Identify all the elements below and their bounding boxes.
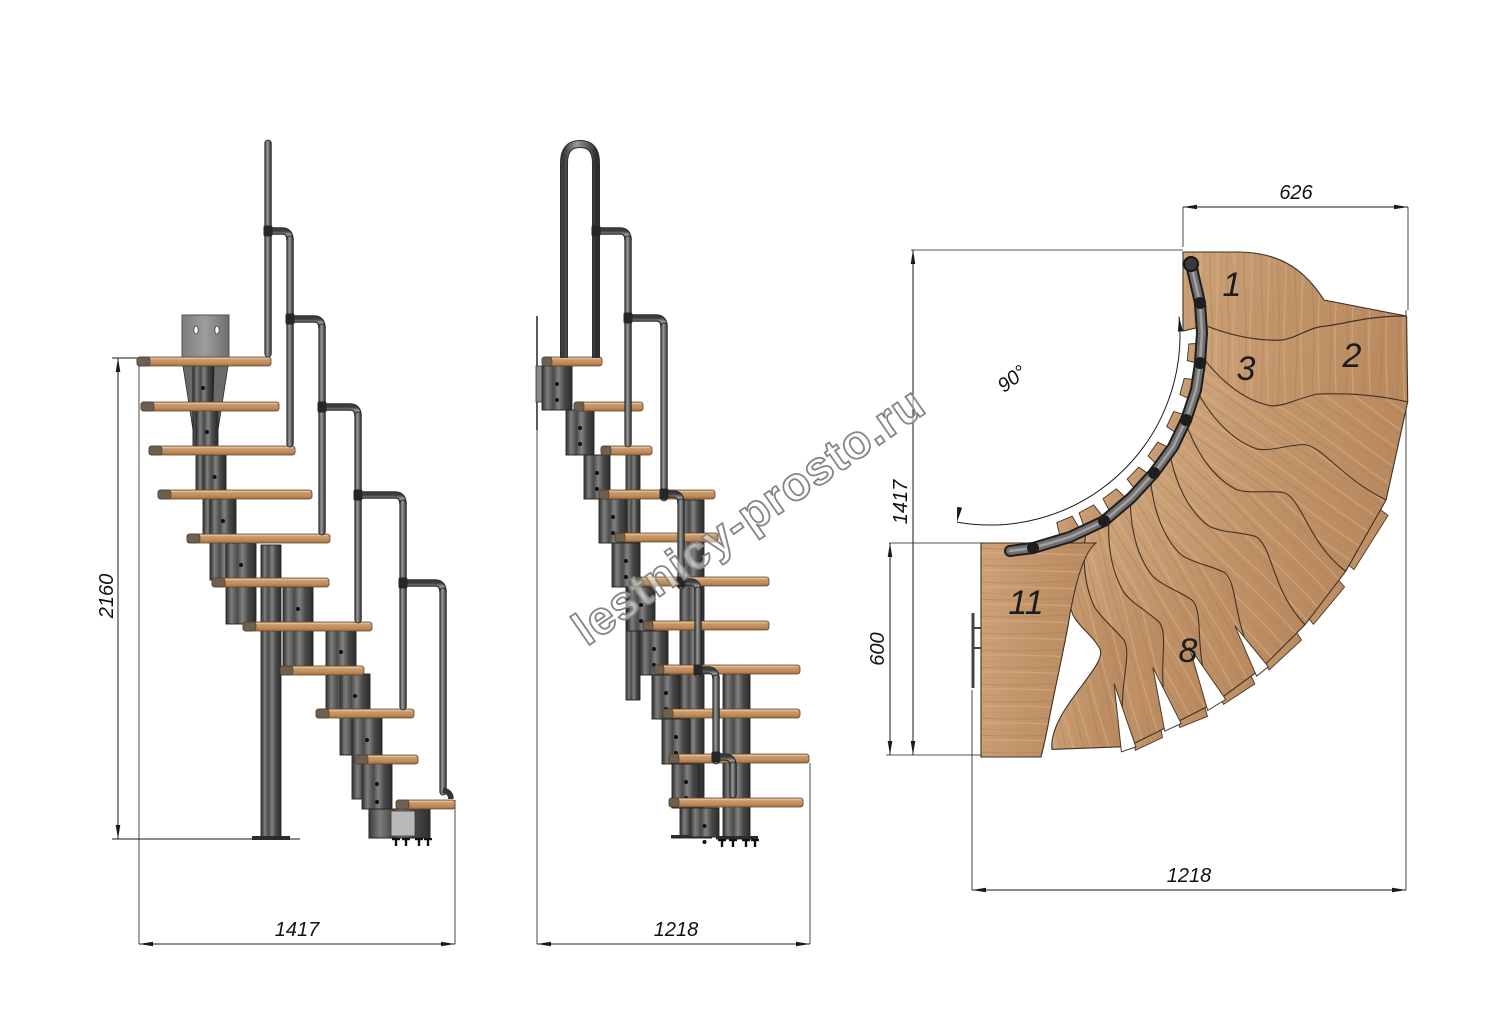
svg-text:1417: 1417 (275, 919, 320, 941)
svg-text:1: 1 (1223, 266, 1242, 304)
svg-text:11: 11 (1008, 584, 1043, 622)
svg-text:600: 600 (867, 632, 889, 665)
svg-text:626: 626 (1279, 182, 1313, 204)
svg-text:8: 8 (1179, 632, 1198, 670)
svg-text:1218: 1218 (654, 919, 699, 941)
svg-text:1218: 1218 (1167, 865, 1212, 887)
svg-text:3: 3 (1237, 350, 1256, 388)
svg-text:1417: 1417 (890, 479, 912, 524)
svg-text:2: 2 (1342, 337, 1362, 375)
svg-text:2160: 2160 (96, 574, 118, 620)
